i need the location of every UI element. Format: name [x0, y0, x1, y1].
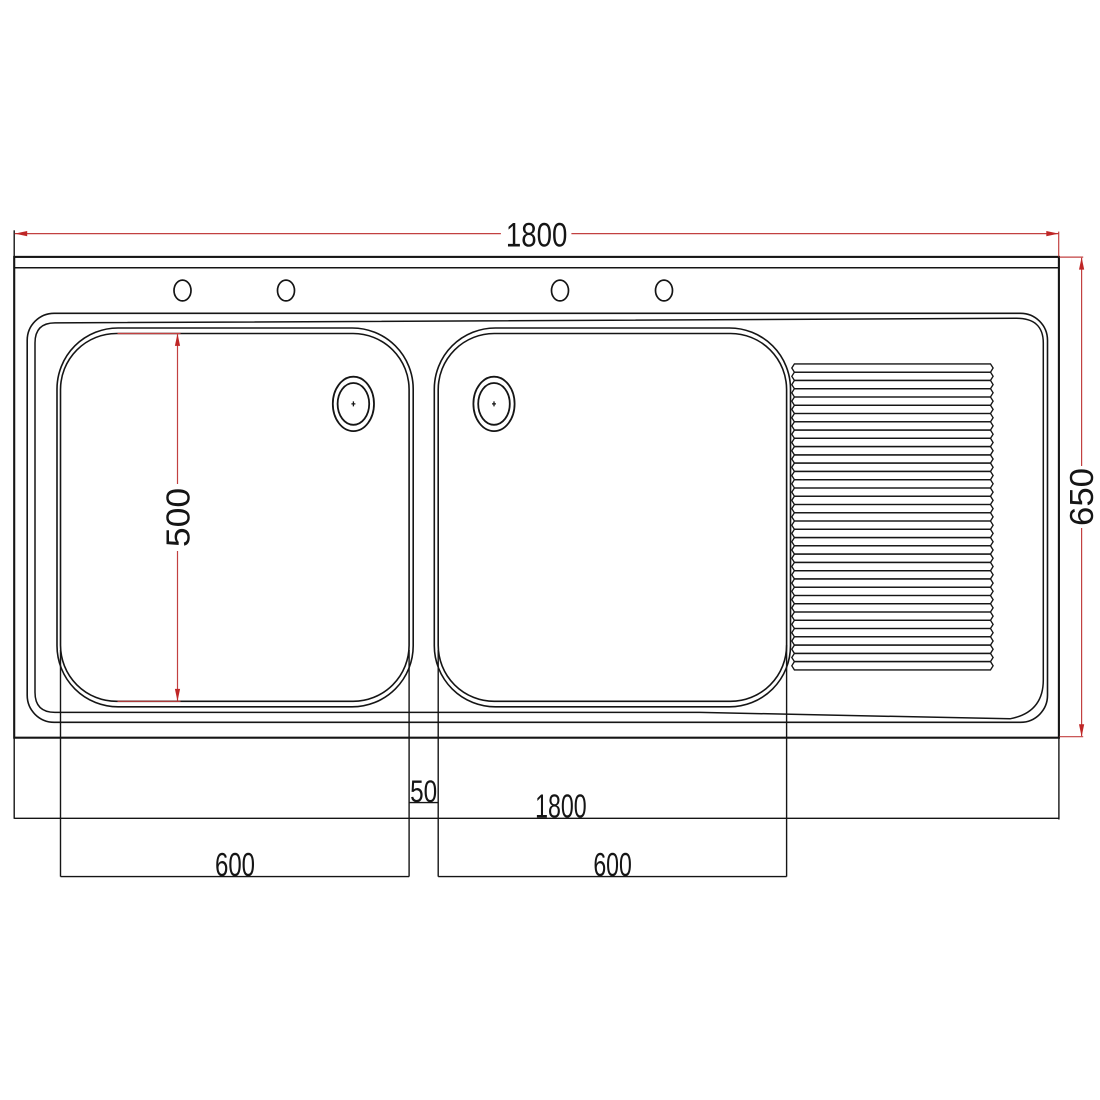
svg-text:600: 600	[215, 846, 255, 883]
svg-text:50: 50	[410, 773, 437, 809]
svg-text:500: 500	[160, 488, 197, 547]
svg-text:1800: 1800	[506, 217, 568, 255]
svg-text:650: 650	[1063, 468, 1100, 526]
svg-text:600: 600	[593, 846, 632, 883]
svg-text:1800: 1800	[535, 787, 587, 824]
